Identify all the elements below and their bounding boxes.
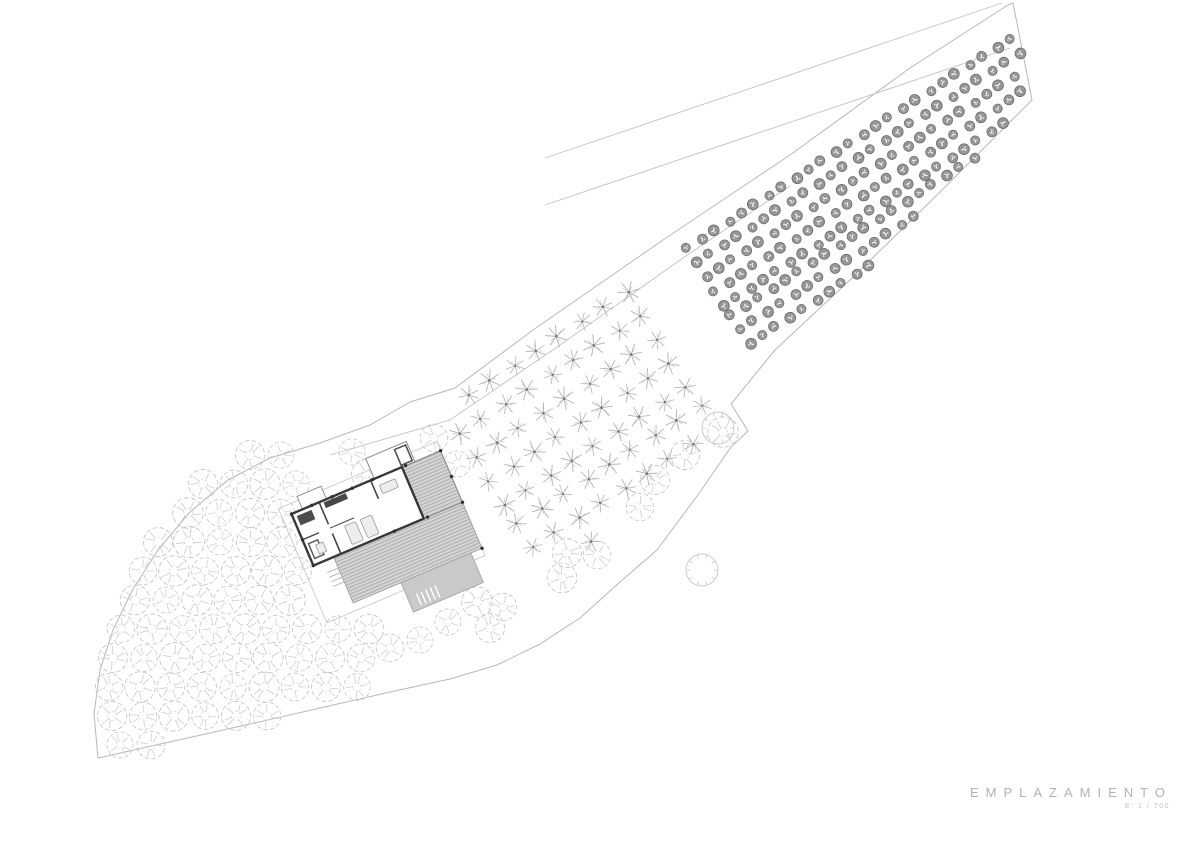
tree <box>215 669 252 706</box>
tree <box>887 150 898 161</box>
tree <box>170 495 206 531</box>
tree <box>250 699 284 733</box>
tree <box>795 247 808 260</box>
tree <box>852 269 863 280</box>
tree <box>226 610 264 648</box>
tree <box>875 214 885 224</box>
tree <box>909 94 920 105</box>
tree <box>969 152 982 165</box>
tree <box>574 464 602 492</box>
tree <box>825 231 835 241</box>
tree <box>696 232 710 246</box>
tree <box>746 259 758 271</box>
tree <box>544 324 567 348</box>
tree <box>914 132 926 144</box>
tree <box>919 108 933 122</box>
tree <box>757 212 770 225</box>
tree <box>825 169 837 181</box>
tree <box>644 423 668 448</box>
tree <box>134 728 167 761</box>
tree <box>964 59 977 72</box>
tree <box>469 607 510 648</box>
tree <box>542 425 566 450</box>
tree <box>276 668 315 707</box>
tree <box>908 155 920 167</box>
tree <box>492 390 521 419</box>
tree <box>856 188 871 203</box>
tree <box>982 89 992 99</box>
tree <box>626 403 653 431</box>
tree <box>757 274 769 286</box>
tree <box>941 114 954 127</box>
tree <box>906 209 920 223</box>
tree <box>789 288 802 301</box>
tree <box>807 201 820 214</box>
tree <box>881 112 892 123</box>
tree <box>987 65 999 77</box>
tree <box>167 613 199 645</box>
tree <box>718 238 732 252</box>
tree <box>991 102 1004 115</box>
tree <box>834 220 849 235</box>
tree <box>829 144 844 159</box>
tree <box>780 218 792 230</box>
tree <box>857 166 870 179</box>
tree <box>232 495 268 531</box>
tree <box>858 128 872 142</box>
tree <box>925 123 938 136</box>
tree <box>139 523 176 560</box>
tree <box>896 163 910 177</box>
tree <box>529 399 558 427</box>
tree <box>839 252 854 267</box>
tree <box>654 446 680 472</box>
tree <box>506 417 530 440</box>
tree <box>187 639 225 677</box>
tree <box>763 189 776 202</box>
tree <box>807 257 819 269</box>
tree <box>762 306 775 319</box>
tree <box>930 160 942 172</box>
tree <box>914 187 925 198</box>
tree <box>541 557 582 598</box>
tree <box>901 195 915 209</box>
tree <box>724 216 736 228</box>
tree <box>689 393 715 418</box>
tree <box>998 56 1010 68</box>
tree <box>812 294 825 307</box>
drawing-sheet: EMPLAZAMIENTO E: 1 / 700 <box>0 0 1200 847</box>
tree <box>790 209 804 223</box>
tree <box>521 439 548 465</box>
inner-terrace-line <box>330 186 790 455</box>
tree <box>652 389 678 415</box>
tree <box>898 220 907 229</box>
tree <box>924 145 938 159</box>
tree <box>801 279 814 292</box>
tree <box>941 170 952 181</box>
tree <box>168 521 209 562</box>
tree <box>577 527 606 556</box>
tree <box>553 387 574 410</box>
tree <box>958 143 971 156</box>
tree <box>577 370 603 396</box>
tree <box>814 155 826 167</box>
tree <box>779 274 790 285</box>
tree <box>653 349 683 379</box>
tree <box>188 699 222 733</box>
tree <box>785 195 798 208</box>
tree <box>1004 34 1015 45</box>
tree <box>863 204 876 217</box>
tree <box>539 518 568 547</box>
tree <box>766 319 780 333</box>
tree <box>802 163 814 175</box>
tree <box>795 303 808 316</box>
tree <box>775 181 787 193</box>
tree <box>843 138 853 148</box>
tree <box>744 337 758 351</box>
tree <box>182 585 213 616</box>
tree <box>744 314 758 328</box>
tree <box>588 490 613 515</box>
tree <box>735 324 745 334</box>
tree <box>730 292 741 303</box>
tree <box>284 643 313 672</box>
tree <box>156 639 193 676</box>
tree <box>790 233 803 246</box>
tree <box>879 133 893 147</box>
tree <box>768 265 781 278</box>
tree <box>94 698 131 735</box>
tree <box>194 609 234 649</box>
tree <box>931 100 943 112</box>
tree <box>522 538 543 558</box>
tree <box>220 641 254 675</box>
tree <box>739 299 753 313</box>
tree <box>536 461 565 490</box>
tree <box>662 407 691 436</box>
tree <box>870 182 880 192</box>
tree <box>521 337 549 365</box>
tree <box>500 453 529 482</box>
tree <box>762 250 776 264</box>
tree <box>567 504 592 530</box>
tree <box>802 225 813 236</box>
tree <box>415 419 454 458</box>
tree <box>476 367 503 395</box>
tree <box>528 495 556 522</box>
tree <box>635 461 660 487</box>
tree <box>288 610 325 647</box>
tree <box>767 282 781 296</box>
tree <box>483 429 511 458</box>
tree <box>598 356 624 381</box>
building-plan <box>274 430 496 645</box>
tree <box>847 176 858 187</box>
tree <box>126 554 160 588</box>
tree <box>102 727 138 763</box>
tree <box>489 593 517 621</box>
tree <box>675 378 696 398</box>
tree <box>470 408 491 430</box>
tree <box>869 119 883 133</box>
tree <box>243 584 274 615</box>
tree <box>768 227 781 240</box>
tree <box>186 671 218 703</box>
tree <box>830 207 842 219</box>
tree <box>774 242 786 254</box>
tree <box>613 474 641 501</box>
tree <box>812 176 827 191</box>
road-outer-edge <box>545 3 1002 158</box>
tree <box>925 85 938 98</box>
tree <box>514 378 539 402</box>
tree <box>125 698 161 734</box>
tree <box>637 462 674 499</box>
tree <box>712 261 726 275</box>
tree <box>463 443 491 471</box>
tree <box>1003 94 1014 105</box>
tree <box>560 448 583 472</box>
tree <box>247 670 282 705</box>
tree <box>841 198 853 210</box>
tree <box>686 554 718 586</box>
tree <box>861 258 876 273</box>
tree <box>768 204 781 217</box>
tree <box>445 418 475 448</box>
tree <box>836 160 849 173</box>
tree <box>491 491 520 521</box>
tree <box>773 297 785 309</box>
tree <box>947 128 960 141</box>
tree <box>188 469 219 500</box>
tree <box>834 277 847 290</box>
tree <box>846 231 857 242</box>
star-tree-orchard <box>445 277 715 557</box>
tree <box>119 584 150 615</box>
tree <box>201 495 238 532</box>
tree <box>819 193 830 204</box>
tree <box>547 533 588 574</box>
tree <box>822 285 836 299</box>
tree <box>969 96 982 109</box>
tree <box>637 367 660 391</box>
tree <box>208 580 247 619</box>
tree <box>868 236 880 248</box>
tree <box>681 243 690 252</box>
tree <box>723 276 737 290</box>
tree <box>903 117 915 129</box>
tree <box>579 433 605 459</box>
tree <box>757 330 768 341</box>
dark-tree-orchard <box>681 34 1028 351</box>
tree <box>708 286 718 296</box>
tree <box>148 582 185 619</box>
tree <box>969 72 984 87</box>
tree <box>154 696 193 735</box>
tree <box>618 340 646 369</box>
tree <box>540 362 565 388</box>
tree <box>902 139 916 153</box>
tree <box>857 245 869 257</box>
tree <box>630 305 651 327</box>
tree <box>479 471 498 491</box>
tree <box>551 482 574 506</box>
tree <box>702 412 734 444</box>
tree <box>996 116 1011 131</box>
tree <box>865 144 874 153</box>
tree <box>879 171 893 185</box>
tree <box>1013 46 1028 61</box>
tree <box>812 271 825 284</box>
tree <box>124 671 155 702</box>
tree <box>689 255 704 270</box>
tree <box>730 230 742 242</box>
tree <box>952 105 965 118</box>
tree <box>991 40 1006 55</box>
tree <box>969 134 982 147</box>
tree <box>308 669 343 704</box>
tree <box>217 697 256 736</box>
tree <box>607 317 633 343</box>
tree <box>248 467 282 501</box>
tree <box>258 611 294 647</box>
tree <box>1012 84 1027 99</box>
tree <box>812 214 827 229</box>
tree <box>891 125 904 138</box>
tree <box>152 668 191 707</box>
tree <box>598 453 622 476</box>
tree <box>892 188 902 198</box>
tree <box>569 308 595 334</box>
road-inner-edge <box>545 48 1010 205</box>
tree <box>947 91 960 104</box>
drawing-scale: E: 1 / 700 <box>970 803 1170 811</box>
tree <box>203 525 237 559</box>
tree <box>798 187 809 198</box>
site-plan-drawing <box>0 0 1200 847</box>
tree <box>752 237 763 248</box>
tree <box>976 51 987 62</box>
tree <box>349 609 388 648</box>
tree <box>936 76 948 88</box>
tree <box>785 312 796 323</box>
tree <box>724 254 735 265</box>
tree <box>514 480 536 502</box>
tree <box>434 608 461 635</box>
tree <box>589 395 614 419</box>
tree <box>250 554 284 588</box>
tree <box>703 248 713 258</box>
tree <box>606 418 633 444</box>
tree <box>310 638 351 679</box>
drawing-title: EMPLAZAMIENTO <box>970 786 1172 800</box>
tree <box>790 171 804 185</box>
tree <box>580 332 607 358</box>
tree <box>215 465 254 504</box>
tree <box>567 408 594 436</box>
tree <box>503 354 527 378</box>
tree <box>321 612 355 646</box>
tree <box>851 150 866 165</box>
tree <box>747 198 759 210</box>
tree <box>402 622 438 658</box>
tree <box>990 78 1005 93</box>
tree <box>896 102 910 116</box>
tree <box>878 226 893 241</box>
tree <box>701 270 715 284</box>
tree <box>233 524 270 561</box>
tree <box>901 177 915 191</box>
tree <box>974 110 988 124</box>
plain-tree-group <box>686 412 734 586</box>
tree <box>1009 71 1020 82</box>
tree <box>835 239 847 251</box>
tree <box>873 156 888 171</box>
tree <box>126 640 162 676</box>
tree <box>834 182 849 197</box>
tree <box>707 224 720 237</box>
tree <box>645 327 671 353</box>
tree <box>734 267 747 280</box>
tree <box>740 244 754 258</box>
title-block: EMPLAZAMIENTO E: 1 / 700 <box>970 786 1172 811</box>
tree <box>189 555 220 586</box>
tree <box>682 434 705 456</box>
tree <box>959 83 970 94</box>
tree <box>615 380 641 406</box>
tree <box>347 644 375 672</box>
tree <box>236 441 265 470</box>
tree <box>560 346 587 373</box>
tree <box>830 263 841 274</box>
tree <box>374 632 406 664</box>
tree <box>704 413 741 450</box>
tree <box>964 120 976 132</box>
tree <box>582 540 613 571</box>
tree <box>936 138 947 149</box>
tree <box>735 206 749 220</box>
tree <box>746 221 758 233</box>
